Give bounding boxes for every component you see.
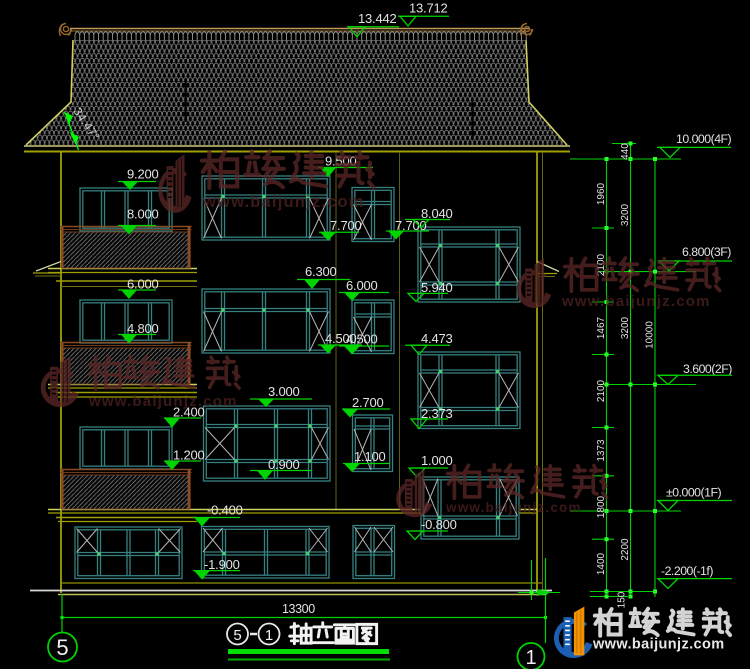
svg-text:-2.200(-1f): -2.200(-1f) [661,564,713,578]
svg-text:5: 5 [233,627,241,644]
svg-text:5.940: 5.940 [421,280,453,295]
svg-text:7.700: 7.700 [330,218,362,233]
svg-text:0.900: 0.900 [268,457,300,472]
svg-text:1.200: 1.200 [173,448,205,463]
svg-text:150: 150 [617,591,628,608]
svg-text:1467: 1467 [596,316,607,339]
svg-text:10.000(4F): 10.000(4F) [676,132,732,146]
svg-text:-0.400: -0.400 [207,503,243,518]
svg-text:www.baijunjz.com: www.baijunjz.com [445,500,582,515]
svg-text:2.700: 2.700 [352,395,384,410]
svg-text:www.baijunjz.com: www.baijunjz.com [561,293,711,310]
svg-text:4.473: 4.473 [421,331,453,346]
svg-text:1373: 1373 [596,439,607,462]
svg-text:www.baijunjz.com: www.baijunjz.com [202,193,365,211]
svg-text:3200: 3200 [620,316,631,339]
svg-text:6.300: 6.300 [305,264,337,279]
svg-text:1400: 1400 [596,552,607,575]
svg-text:5: 5 [56,635,68,660]
svg-text:440: 440 [620,143,631,160]
svg-text:1: 1 [525,647,536,669]
svg-text:3.600(2F): 3.600(2F) [683,362,732,376]
svg-text:3200: 3200 [620,203,631,226]
svg-text:8.000: 8.000 [127,207,159,222]
svg-text:3.000: 3.000 [268,384,300,399]
svg-text:www.baijunjz.com: www.baijunjz.com [88,393,238,410]
svg-text:13300: 13300 [282,602,315,616]
svg-text:8.040: 8.040 [421,206,453,221]
svg-text:www.baijunjz.com: www.baijunjz.com [592,637,725,653]
svg-text:-0.800: -0.800 [421,517,457,532]
svg-text:4.800: 4.800 [127,321,159,336]
svg-text:6.800(3F): 6.800(3F) [682,245,731,259]
svg-text:6.000: 6.000 [346,278,378,293]
svg-text:2200: 2200 [620,538,631,561]
svg-text:±0.000(1F): ±0.000(1F) [666,486,721,500]
svg-text:9.200: 9.200 [127,167,159,182]
svg-text:6.000: 6.000 [127,277,159,292]
svg-text:1.100: 1.100 [354,449,386,464]
svg-text:13.712: 13.712 [409,1,448,16]
svg-text:4.500: 4.500 [346,332,378,347]
svg-text:1: 1 [265,627,273,644]
svg-text:10000: 10000 [645,321,656,349]
svg-text:-1.900: -1.900 [204,557,240,572]
svg-text:2100: 2100 [596,379,607,402]
svg-text:1960: 1960 [596,182,607,205]
svg-text:13.442: 13.442 [358,11,397,26]
svg-text:1.000: 1.000 [421,453,453,468]
